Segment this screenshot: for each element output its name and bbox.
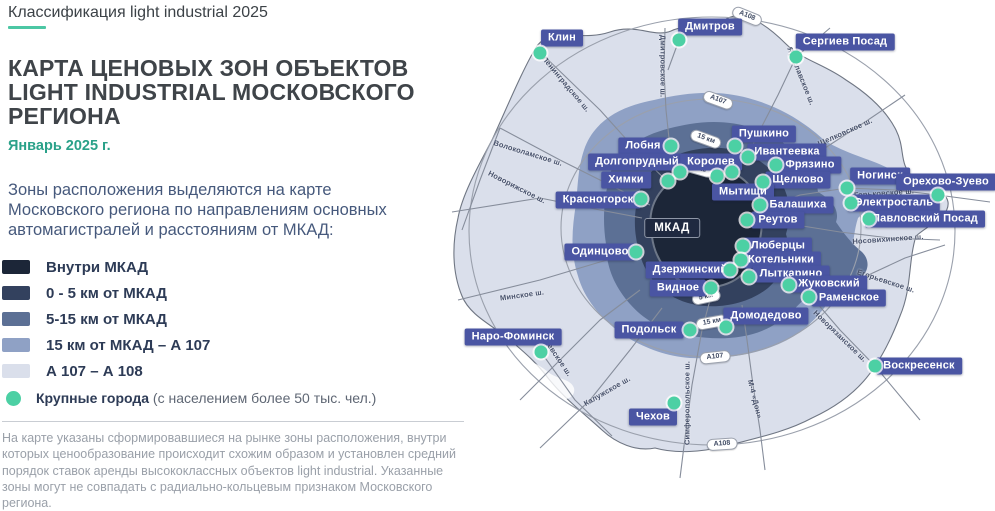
legend-row: 5-15 км от МКАД xyxy=(8,306,470,332)
intro-text: Зоны расположения выделяются на карте Мо… xyxy=(8,180,406,240)
city-dot xyxy=(737,240,750,253)
legend-city-marker-row: Крупные города (с населением более 50 ты… xyxy=(8,385,470,411)
road-label: Дмитровское ш. xyxy=(659,35,668,98)
divider xyxy=(2,421,464,422)
road-label: Симферопольское ш. xyxy=(683,361,692,445)
city-dot xyxy=(535,346,548,359)
city-label: Электросталь xyxy=(848,195,940,212)
mkad-badge: МКАД xyxy=(644,218,700,238)
city-label: Дмитров xyxy=(678,19,742,36)
kicker-underline xyxy=(8,26,46,29)
legend-swatch xyxy=(2,260,30,274)
city-label: Павловский Посад xyxy=(865,211,985,228)
city-dot xyxy=(757,176,770,189)
city-dot xyxy=(803,291,816,304)
city-dot xyxy=(534,47,547,60)
city-dot xyxy=(630,246,643,259)
zone-legend: Внутри МКАД0 - 5 км от МКАД5-15 км от МК… xyxy=(8,254,470,384)
city-dot xyxy=(770,159,783,172)
city-label: Химки xyxy=(601,172,651,189)
city-dot xyxy=(668,397,681,410)
date-label: Январь 2025 г. xyxy=(8,138,470,154)
city-dot xyxy=(635,193,648,206)
legend-label: 15 км от МКАД – А 107 xyxy=(46,337,210,354)
city-dot xyxy=(783,279,796,292)
city-label: Клин xyxy=(541,30,583,47)
city-label: Дзержинский xyxy=(646,262,735,279)
city-label: Чехов xyxy=(629,409,677,426)
city-marker-legend-dot xyxy=(6,391,21,406)
city-dot xyxy=(841,182,854,195)
left-panel: Классификация light industrial 2025 КАРТ… xyxy=(8,0,470,511)
legend-label: Внутри МКАД xyxy=(46,259,148,276)
city-label: Орехово-Зуево xyxy=(896,174,995,191)
legend-label: 5-15 км от МКАД xyxy=(46,311,167,328)
city-label: Подольск xyxy=(615,322,684,339)
city-dot xyxy=(742,151,755,164)
city-dot xyxy=(735,254,748,267)
city-marker-legend-label: Крупные города (с населением более 50 ты… xyxy=(36,390,376,406)
city-label: Наро-Фоминск xyxy=(465,329,562,346)
legend-swatch xyxy=(2,338,30,352)
city-label: Пушкино xyxy=(732,126,796,143)
city-dot xyxy=(684,324,697,337)
city-dot xyxy=(729,140,742,153)
city-dot xyxy=(665,140,678,153)
page-title: КАРТА ЦЕНОВЫХ ЗОН ОБЪЕКТОВ LIGHT INDUSTR… xyxy=(8,57,460,129)
city-marker-label-bold: Крупные города xyxy=(36,390,149,406)
legend-swatch xyxy=(2,364,30,378)
city-dot xyxy=(726,166,739,179)
city-dot xyxy=(711,170,724,183)
city-marker-label-rest: (с населением более 50 тыс. чел.) xyxy=(149,390,376,406)
road-badge: А108 xyxy=(706,437,737,451)
city-dot xyxy=(869,360,882,373)
legend-row: А 107 – А 108 xyxy=(8,358,470,384)
legend-label: А 107 – А 108 xyxy=(46,363,143,380)
city-label: Красногорск xyxy=(556,192,641,209)
city-dot xyxy=(932,189,945,202)
city-label: Лобня xyxy=(618,138,667,155)
legend-row: 15 км от МКАД – А 107 xyxy=(8,332,470,358)
city-dot xyxy=(724,264,737,277)
city-label: Щелково xyxy=(765,172,830,189)
kicker: Классификация light industrial 2025 xyxy=(8,4,470,22)
city-dot xyxy=(673,34,686,47)
page: МКАД КлинДмитровСергиев ПосадЛобняПушкин… xyxy=(0,0,995,480)
legend-swatch xyxy=(2,286,30,300)
city-dot xyxy=(743,271,756,284)
legend-swatch xyxy=(2,312,30,326)
city-label: Сергиев Посад xyxy=(796,34,895,51)
city-label: Раменское xyxy=(812,290,886,307)
city-dot xyxy=(863,213,876,226)
city-dot xyxy=(845,197,858,210)
city-dot xyxy=(674,166,687,179)
footnote: На карте указаны сформировавшиеся на рын… xyxy=(2,430,468,511)
city-label: Одинцово xyxy=(564,244,635,261)
city-dot xyxy=(662,175,675,188)
city-label: Долгопрудный xyxy=(588,154,686,171)
city-dot xyxy=(705,282,718,295)
city-label: Воскресенск xyxy=(876,358,962,375)
city-label: Реутов xyxy=(751,212,804,229)
city-dot xyxy=(741,214,754,227)
city-dot xyxy=(790,51,803,64)
legend-label: 0 - 5 км от МКАД xyxy=(46,285,167,302)
city-label: Домодедово xyxy=(723,308,808,325)
city-dot xyxy=(754,199,767,212)
legend-row: Внутри МКАД xyxy=(8,254,470,280)
legend-row: 0 - 5 км от МКАД xyxy=(8,280,470,306)
city-dot xyxy=(720,321,733,334)
city-label: Видное xyxy=(650,280,706,297)
